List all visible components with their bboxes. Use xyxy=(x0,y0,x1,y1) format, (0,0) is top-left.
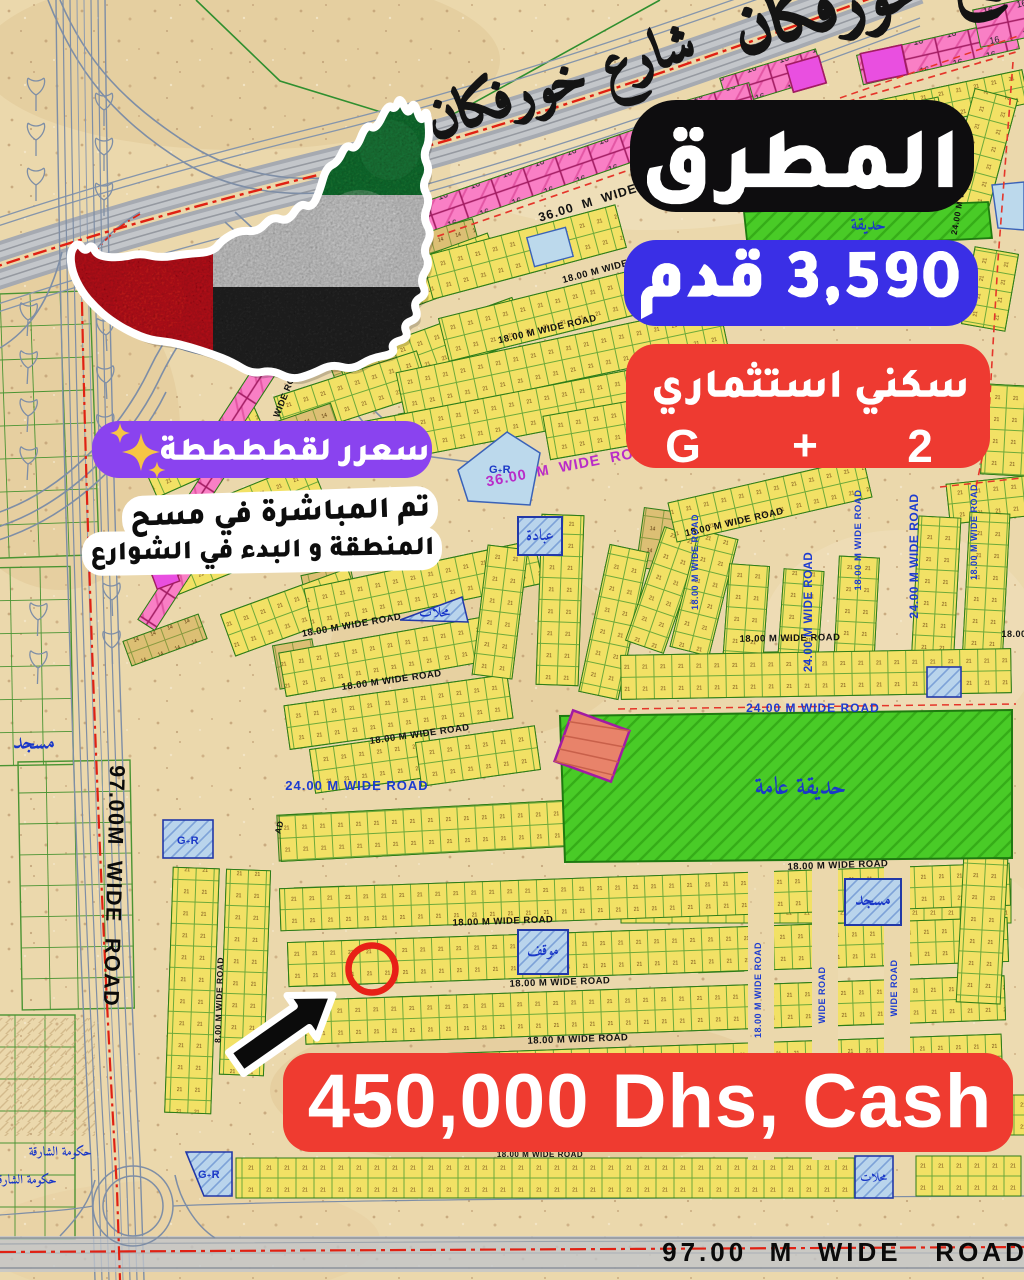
svg-text:18.00: 18.00 xyxy=(1001,629,1024,639)
svg-text:WIDE ROAD: WIDE ROAD xyxy=(817,967,827,1024)
svg-text:18.00 M WIDE ROAD: 18.00 M WIDE ROAD xyxy=(969,484,979,580)
svg-text:450,000 Dhs, Cash: 450,000 Dhs, Cash xyxy=(308,1059,993,1144)
svg-text:24.00 M WIDE ROAD: 24.00 M WIDE ROAD xyxy=(746,701,880,715)
svg-text:24.00 M WIDE ROAD: 24.00 M WIDE ROAD xyxy=(803,552,815,672)
svg-text:24.00 M WIDE ROAD: 24.00 M WIDE ROAD xyxy=(907,493,921,618)
svg-text:18.00 M WIDE ROAD: 18.00 M WIDE ROAD xyxy=(690,514,700,610)
svg-text:+: + xyxy=(792,421,818,470)
svg-text:G: G xyxy=(665,420,701,472)
svg-text:24.00 M WIDE ROAD: 24.00 M WIDE ROAD xyxy=(285,778,428,793)
svg-text:18.00 M WIDE ROAD: 18.00 M WIDE ROAD xyxy=(753,942,763,1038)
svg-text:18.00 M WIDE ROAD: 18.00 M WIDE ROAD xyxy=(853,490,864,591)
svg-text:18.00 M WIDE ROAD: 18.00 M WIDE ROAD xyxy=(739,632,840,645)
svg-text:97.00 M WIDE ROAD: 97.00 M WIDE ROAD xyxy=(662,1237,1024,1267)
svg-text:2: 2 xyxy=(907,420,933,472)
svg-text:WIDE ROAD: WIDE ROAD xyxy=(889,960,899,1017)
